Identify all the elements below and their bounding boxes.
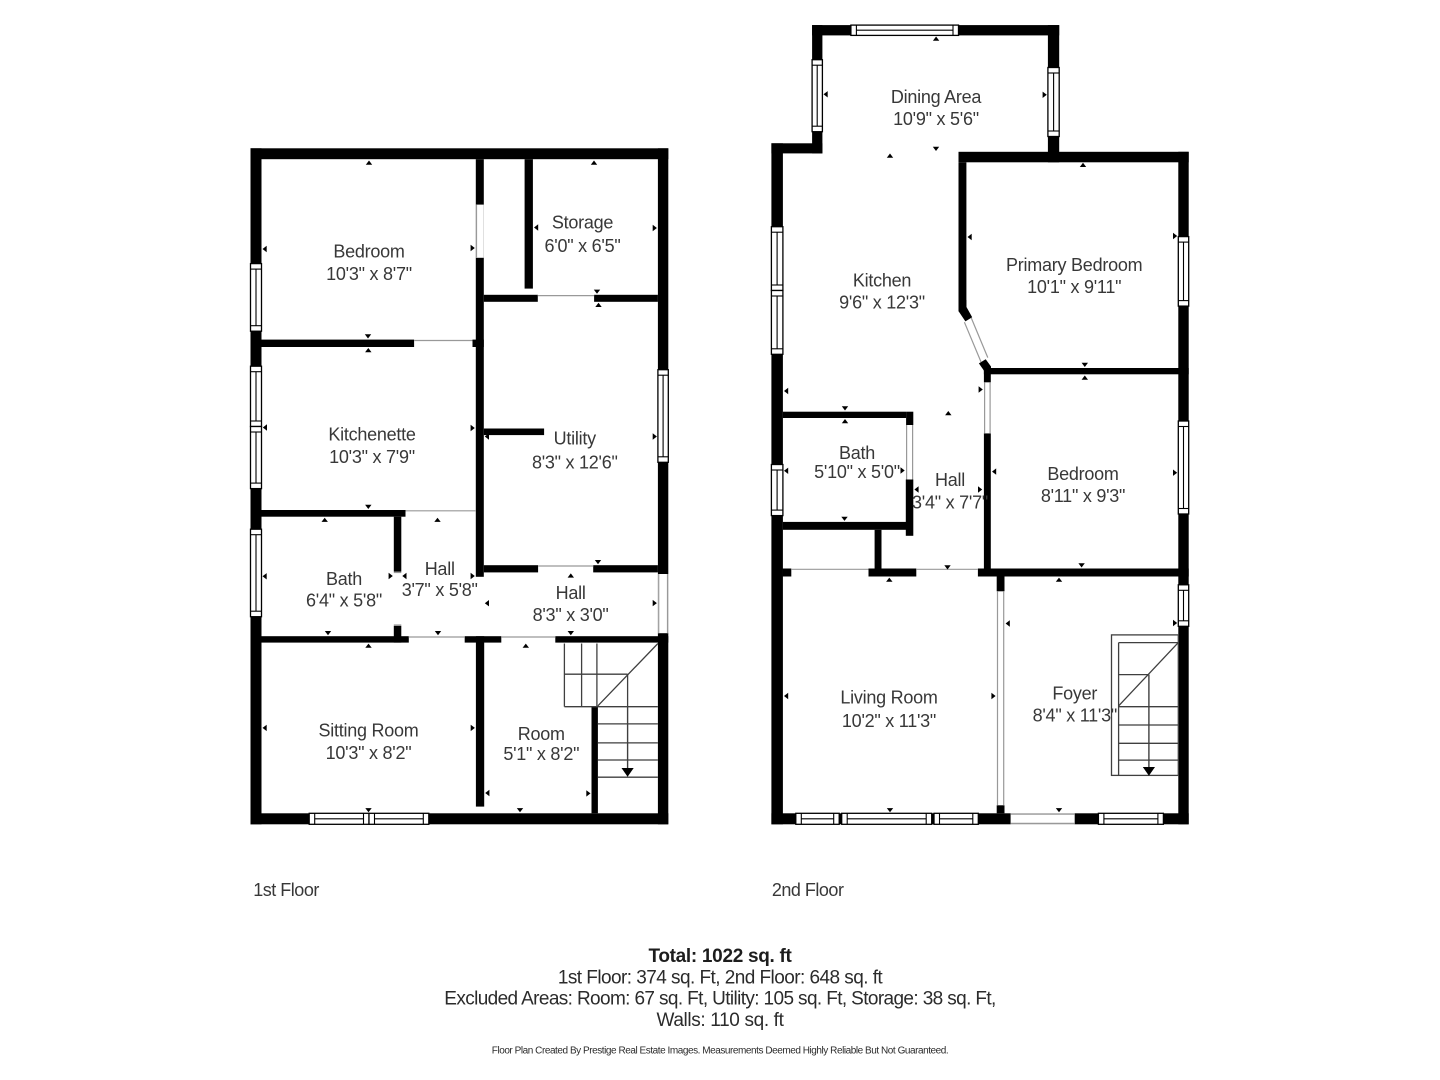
svg-text:Living Room: Living Room <box>840 688 937 708</box>
svg-text:Total: 1022 sq. ft: Total: 1022 sq. ft <box>648 946 792 967</box>
svg-text:Hall: Hall <box>425 559 455 579</box>
svg-text:Storage: Storage <box>552 213 614 233</box>
svg-text:Walls: 110 sq. ft: Walls: 110 sq. ft <box>656 1010 784 1031</box>
svg-text:9'6" x 12'3": 9'6" x 12'3" <box>839 293 925 313</box>
svg-text:10'3" x 8'7": 10'3" x 8'7" <box>326 264 412 284</box>
svg-text:Floor Plan Created By Prestige: Floor Plan Created By Prestige Real Esta… <box>492 1046 948 1057</box>
svg-text:Foyer: Foyer <box>1052 684 1097 704</box>
svg-text:Bath: Bath <box>839 443 875 463</box>
svg-text:Utility: Utility <box>554 429 596 449</box>
svg-text:8'4" x 11'3": 8'4" x 11'3" <box>1033 706 1117 726</box>
svg-text:8'11" x 9'3": 8'11" x 9'3" <box>1041 486 1125 506</box>
svg-text:1st Floor: 374 sq. Ft, 2nd Flo: 1st Floor: 374 sq. Ft, 2nd Floor: 648 sq… <box>558 968 884 989</box>
svg-text:Bath: Bath <box>326 569 362 589</box>
svg-text:6'0" x 6'5": 6'0" x 6'5" <box>545 236 621 256</box>
svg-text:10'1" x 9'11": 10'1" x 9'11" <box>1027 277 1121 297</box>
svg-text:6'4" x 5'8": 6'4" x 5'8" <box>306 591 382 611</box>
svg-text:5'10" x 5'0": 5'10" x 5'0" <box>814 462 900 482</box>
svg-text:Bedroom: Bedroom <box>333 242 404 262</box>
svg-text:Dining Area: Dining Area <box>891 87 983 107</box>
svg-text:Room: Room <box>518 724 565 744</box>
svg-text:Bedroom: Bedroom <box>1047 464 1118 484</box>
svg-text:3'4" x 7'7": 3'4" x 7'7" <box>912 493 988 513</box>
svg-text:3'7" x 5'8": 3'7" x 5'8" <box>402 580 478 600</box>
svg-text:Excluded Areas: Room: 67 sq. F: Excluded Areas: Room: 67 sq. Ft, Utility… <box>444 989 995 1010</box>
svg-text:10'9" x 5'6": 10'9" x 5'6" <box>893 109 979 129</box>
svg-text:1st Floor: 1st Floor <box>253 880 319 900</box>
svg-text:Primary Bedroom: Primary Bedroom <box>1006 255 1142 275</box>
svg-text:Kitchenette: Kitchenette <box>328 425 416 445</box>
svg-text:8'3" x 3'0": 8'3" x 3'0" <box>533 605 609 625</box>
svg-text:Hall: Hall <box>935 470 965 490</box>
svg-text:10'3" x 8'2": 10'3" x 8'2" <box>326 743 412 763</box>
svg-text:Sitting Room: Sitting Room <box>318 721 418 741</box>
svg-text:Kitchen: Kitchen <box>853 271 911 291</box>
svg-text:8'3" x 12'6": 8'3" x 12'6" <box>532 453 618 473</box>
svg-text:5'1" x 8'2": 5'1" x 8'2" <box>503 744 579 764</box>
svg-text:Hall: Hall <box>556 583 586 603</box>
svg-text:10'3" x 7'9": 10'3" x 7'9" <box>329 447 415 467</box>
svg-text:10'2" x 11'3": 10'2" x 11'3" <box>842 711 936 731</box>
svg-text:2nd Floor: 2nd Floor <box>772 880 844 900</box>
